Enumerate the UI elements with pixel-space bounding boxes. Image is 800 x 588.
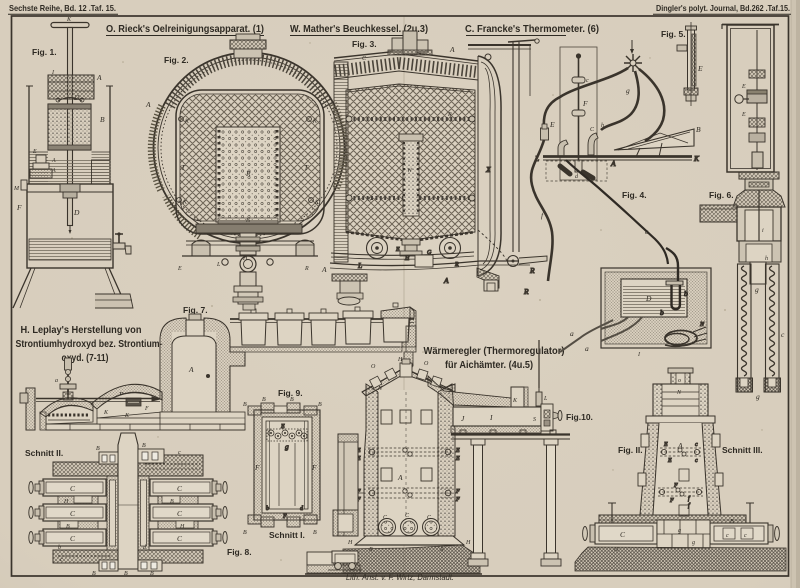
svg-text:E: E — [280, 424, 285, 430]
svg-text:F: F — [254, 463, 260, 472]
svg-text:B: B — [66, 524, 70, 530]
svg-text:B: B — [313, 530, 317, 536]
svg-text:F: F — [282, 514, 287, 520]
svg-text:H: H — [347, 540, 353, 546]
svg-text:O. Rieck's Oelreinigungsappara: O. Rieck's Oelreinigungsapparat. (1) — [106, 24, 264, 35]
svg-text:Fig. 2.: Fig. 2. — [164, 55, 189, 65]
svg-text:Schnitt II.: Schnitt II. — [25, 448, 63, 458]
svg-text:X: X — [485, 165, 491, 174]
svg-text:Fig. 7.: Fig. 7. — [183, 305, 208, 315]
svg-text:F: F — [16, 203, 22, 212]
svg-text:B: B — [100, 115, 105, 124]
svg-text:Sechste Reihe, Bd. 12 .Taf.: Sechste Reihe, Bd. 12 .Taf. 15. — [9, 3, 116, 13]
svg-text:A: A — [677, 441, 683, 450]
svg-text:D: D — [73, 208, 80, 217]
svg-text:D: D — [645, 294, 652, 303]
svg-text:A: A — [145, 100, 151, 109]
svg-text:c: c — [695, 442, 698, 448]
svg-text:c: c — [586, 78, 589, 84]
svg-text:K: K — [693, 154, 700, 163]
svg-text:E: E — [697, 64, 703, 73]
svg-text:Wärmeregler (Thermoregulator): Wärmeregler (Thermoregulator) — [424, 346, 565, 357]
svg-text:Fig.10.: Fig.10. — [566, 412, 593, 422]
svg-text:c: c — [60, 557, 63, 563]
svg-text:B: B — [142, 443, 146, 449]
svg-text:F: F — [144, 406, 149, 412]
svg-text:A: A — [397, 473, 403, 482]
svg-text:b: b — [684, 289, 688, 298]
svg-text:H: H — [465, 540, 471, 546]
svg-text:A: A — [443, 276, 449, 285]
svg-text:Strontiumhydroxyd bez. Stronti: Strontiumhydroxyd bez. Strontium- — [16, 339, 163, 350]
svg-text:c: c — [744, 533, 747, 539]
svg-text:Fig. 3.: Fig. 3. — [352, 39, 377, 49]
svg-text:E: E — [177, 266, 182, 272]
svg-text:F: F — [669, 498, 674, 504]
svg-text:B: B — [290, 397, 294, 403]
svg-text:L: L — [534, 154, 539, 163]
svg-text:Fig. II.: Fig. II. — [618, 445, 643, 455]
svg-text:F: F — [311, 463, 317, 472]
svg-text:E: E — [455, 448, 460, 454]
svg-text:E: E — [741, 84, 746, 90]
svg-text:g: g — [285, 442, 289, 451]
svg-text:Schnitt III.: Schnitt III. — [722, 445, 763, 455]
svg-text:E: E — [32, 149, 37, 155]
svg-text:Fig. 6.: Fig. 6. — [709, 190, 734, 200]
svg-text:R: R — [454, 262, 459, 268]
svg-text:A: A — [51, 158, 56, 164]
svg-text:H: H — [63, 499, 69, 505]
svg-text:B: B — [124, 571, 128, 577]
svg-text:c: c — [695, 458, 698, 464]
svg-text:L: L — [357, 261, 362, 270]
svg-text:A: A — [610, 159, 616, 168]
svg-text:H: H — [179, 524, 185, 530]
svg-text:für Aichämter. (4u.5): für Aichämter. (4u.5) — [445, 360, 533, 371]
svg-text:S: S — [533, 417, 536, 423]
svg-text:B: B — [170, 499, 174, 505]
svg-text:a: a — [585, 344, 589, 353]
svg-text:R: R — [529, 266, 535, 275]
svg-text:Dingler's polyt. Journal, Bd.2: Dingler's polyt. Journal, Bd.262 .Taf.15… — [656, 3, 790, 13]
svg-text:B: B — [243, 530, 247, 536]
svg-text:A: A — [96, 73, 102, 82]
svg-text:B: B — [92, 571, 96, 577]
svg-text:Schnitt I.: Schnitt I. — [269, 530, 305, 540]
svg-text:b: b — [266, 506, 269, 512]
svg-text:H: H — [404, 256, 410, 262]
svg-text:F: F — [455, 489, 460, 495]
svg-text:L: L — [216, 262, 221, 268]
svg-text:Fig. 8.: Fig. 8. — [227, 547, 252, 557]
svg-text:H: H — [397, 357, 403, 363]
svg-text:A: A — [51, 168, 56, 174]
svg-text:g: g — [626, 86, 630, 95]
svg-text:F: F — [582, 99, 588, 108]
svg-text:R: R — [304, 266, 309, 272]
svg-text:H. Leplay's Herstellung von: H. Leplay's Herstellung von — [21, 325, 142, 336]
svg-text:B: B — [262, 397, 266, 403]
svg-text:R: R — [447, 112, 452, 118]
svg-text:b: b — [58, 545, 61, 551]
svg-text:E: E — [455, 456, 460, 462]
svg-text:R: R — [245, 169, 251, 178]
svg-text:c: c — [726, 533, 729, 539]
svg-text:b: b — [660, 308, 664, 317]
svg-text:E: E — [395, 247, 400, 253]
svg-text:B: B — [243, 402, 247, 408]
svg-text:g: g — [756, 392, 760, 401]
svg-text:E: E — [741, 112, 746, 118]
svg-text:E: E — [549, 120, 555, 129]
svg-text:B: B — [318, 402, 322, 408]
svg-text:I: I — [489, 413, 493, 422]
svg-text:h: h — [601, 123, 604, 129]
svg-text:g: g — [678, 528, 681, 534]
svg-text:O: O — [371, 364, 376, 370]
svg-text:h: h — [765, 256, 768, 262]
svg-text:M: M — [13, 186, 20, 192]
svg-text:g: g — [755, 285, 759, 294]
svg-text:C. Francke's Thermometer. (6): C. Francke's Thermometer. (6) — [465, 24, 599, 35]
svg-text:F: F — [455, 497, 460, 503]
svg-text:g: g — [692, 540, 695, 546]
svg-text:O: O — [424, 361, 429, 367]
svg-text:Fig. 5.: Fig. 5. — [661, 29, 686, 39]
svg-text:E: E — [663, 442, 668, 448]
svg-text:F: F — [673, 483, 678, 489]
svg-text:B: B — [246, 218, 250, 224]
svg-text:L: L — [543, 396, 548, 402]
svg-text:c: c — [178, 450, 181, 456]
svg-text:H: H — [242, 256, 248, 262]
svg-text:E: E — [667, 458, 672, 464]
svg-text:R: R — [523, 287, 529, 296]
svg-text:o: o — [678, 378, 681, 384]
svg-text:B: B — [150, 571, 154, 577]
svg-text:Fig. 1.: Fig. 1. — [32, 47, 57, 57]
svg-text:Fig. 4.: Fig. 4. — [622, 190, 647, 200]
svg-text:A: A — [321, 265, 327, 274]
svg-text:A: A — [188, 365, 194, 374]
svg-text:a: a — [570, 329, 574, 338]
svg-text:B: B — [696, 125, 701, 134]
svg-text:S: S — [368, 197, 371, 203]
svg-text:B: B — [96, 446, 100, 452]
svg-text:a: a — [55, 378, 58, 384]
svg-text:B: B — [730, 519, 734, 525]
svg-text:A: A — [449, 45, 455, 54]
